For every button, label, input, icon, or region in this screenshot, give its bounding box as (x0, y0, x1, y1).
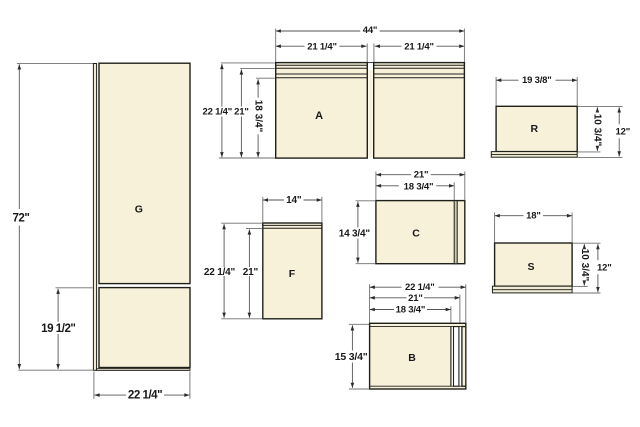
svg-text:G: G (135, 203, 143, 215)
svg-text:F: F (289, 268, 296, 280)
svg-text:C: C (412, 228, 420, 240)
svg-text:12": 12" (597, 263, 611, 274)
svg-text:21": 21" (243, 267, 259, 278)
svg-text:15 3/4": 15 3/4" (335, 351, 368, 363)
svg-text:18 3/4": 18 3/4" (396, 305, 426, 316)
svg-text:10 3/4": 10 3/4" (579, 249, 590, 282)
svg-text:22 1/4": 22 1/4" (128, 388, 162, 401)
svg-text:22 1/4": 22 1/4" (405, 282, 435, 293)
svg-text:44": 44" (363, 25, 377, 36)
svg-text:72": 72" (12, 211, 29, 224)
svg-text:21": 21" (234, 106, 248, 117)
svg-text:B: B (408, 352, 416, 364)
svg-text:22 1/4": 22 1/4" (203, 106, 233, 117)
svg-text:19 1/2": 19 1/2" (41, 322, 75, 335)
svg-text:14 3/4": 14 3/4" (339, 229, 371, 240)
svg-text:14": 14" (286, 195, 302, 206)
svg-text:R: R (531, 123, 539, 135)
svg-text:12": 12" (616, 127, 630, 138)
svg-text:21 1/4": 21 1/4" (307, 41, 337, 52)
svg-text:S: S (527, 261, 534, 273)
svg-text:19 3/8": 19 3/8" (522, 75, 552, 86)
svg-text:22 1/4": 22 1/4" (204, 267, 236, 278)
svg-text:21": 21" (408, 293, 422, 304)
svg-text:18 3/4": 18 3/4" (252, 100, 263, 133)
svg-text:18": 18" (526, 211, 540, 222)
svg-text:21": 21" (414, 170, 429, 181)
svg-text:18 3/4": 18 3/4" (404, 181, 434, 192)
svg-text:21 1/4": 21 1/4" (404, 41, 434, 52)
svg-text:10 3/4": 10 3/4" (592, 114, 603, 147)
svg-text:A: A (315, 110, 323, 122)
